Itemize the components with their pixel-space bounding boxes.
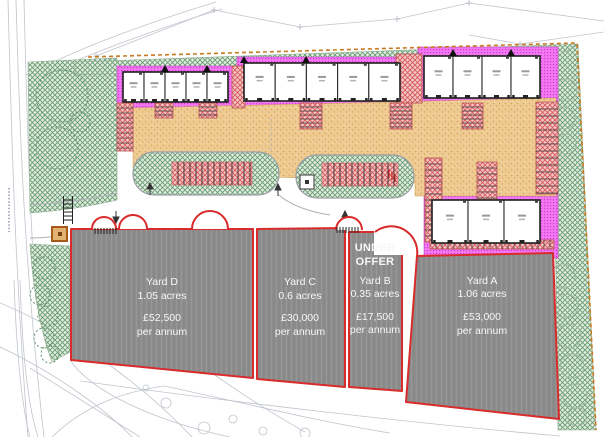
yard-b-status-2: OFFER — [356, 256, 395, 268]
yard-d-region — [71, 229, 253, 378]
yard-c-area: 0.6 acres — [278, 290, 321, 302]
yard-d-name: Yard D — [146, 276, 178, 288]
parking-island-1 — [133, 152, 279, 195]
gate-cattle-grid — [64, 196, 73, 224]
yard-b-area: 0.35 acres — [350, 288, 399, 300]
yard-b-period: per annum — [350, 324, 400, 336]
yard-d-rent: £52,500 — [143, 312, 181, 324]
yard-b-label: UNDER OFFER Yard B 0.35 acres £17,500 pe… — [350, 242, 400, 336]
yard-a-period: per annum — [457, 325, 507, 337]
yard-a-area: 1.06 acres — [457, 288, 506, 300]
yard-b-rent: £17,500 — [356, 311, 394, 323]
yard-c-rent: £30,000 — [281, 312, 319, 324]
electricity-substation — [52, 227, 67, 241]
landscape-bottom-left — [30, 244, 70, 362]
site-plan: Yard D 1.05 acres £52,500 per annum Yard… — [0, 0, 604, 437]
yard-d-area: 1.05 acres — [137, 290, 186, 302]
yard-a-rent: £53,000 — [463, 311, 501, 323]
yard-b-status-1: UNDER — [355, 242, 396, 254]
substation-kiosk-core — [305, 180, 309, 184]
landscape-right-strip — [553, 45, 596, 430]
yard-c-region — [257, 228, 345, 387]
yard-d-period: per annum — [137, 326, 187, 338]
yard-b-name: Yard B — [359, 275, 390, 287]
yard-c-name: Yard C — [284, 276, 316, 288]
yard-a-name: Yard A — [467, 275, 498, 287]
parking-island-2 — [296, 155, 414, 198]
yard-c-period: per annum — [275, 326, 325, 338]
landscape-top-left — [28, 58, 117, 213]
